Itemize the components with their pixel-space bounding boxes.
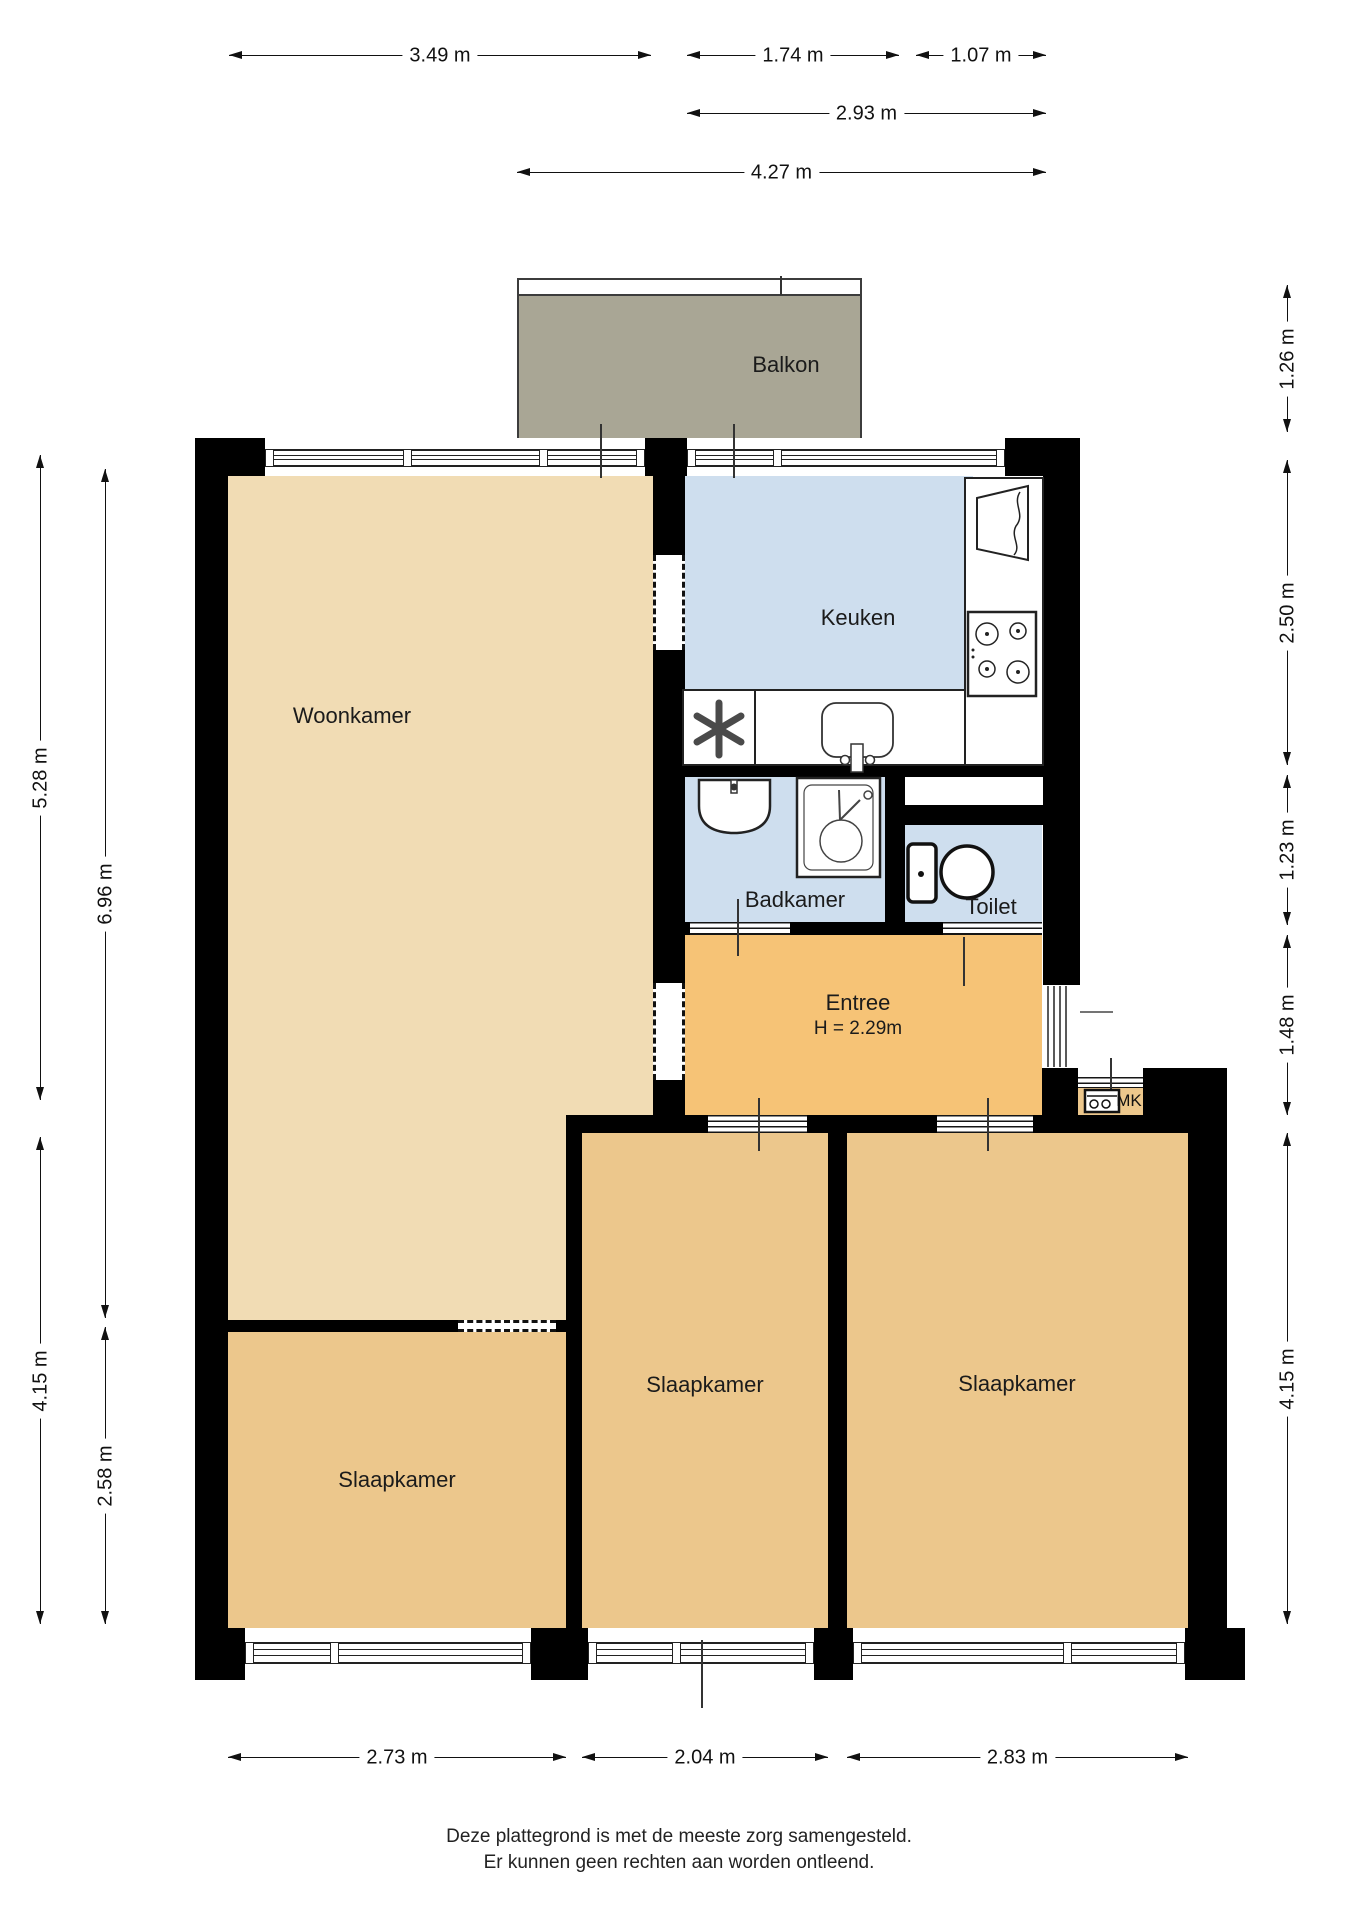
dim-right-148: 1.48 m bbox=[1287, 935, 1288, 1115]
open-passage-dashed bbox=[458, 1320, 556, 1332]
window-jamb bbox=[853, 1642, 862, 1664]
stove-icon bbox=[968, 612, 1036, 696]
dim-label: 1.07 m bbox=[943, 45, 1018, 68]
wall-segment bbox=[653, 765, 1043, 777]
wall-segment bbox=[1043, 438, 1080, 985]
wall-segment bbox=[195, 438, 265, 476]
open-passage-dashed bbox=[653, 555, 685, 650]
dim-label: 2.73 m bbox=[359, 1747, 434, 1770]
front-door-icon bbox=[1048, 986, 1113, 1067]
dim-right-123: 1.23 m bbox=[1287, 775, 1288, 925]
dim-label: 4.15 m bbox=[1277, 1341, 1300, 1416]
dim-label: 2.58 m bbox=[95, 1438, 118, 1513]
wall-segment bbox=[531, 1628, 588, 1680]
wall-segment bbox=[807, 1115, 937, 1133]
wall-segment bbox=[645, 438, 687, 476]
dim-label: 2.50 m bbox=[1277, 575, 1300, 650]
wall-segment bbox=[790, 922, 885, 935]
wall-segment bbox=[566, 1115, 582, 1628]
railing-joint-tick bbox=[780, 276, 782, 295]
door-toilet bbox=[943, 922, 1042, 935]
wall-segment bbox=[828, 1133, 847, 1628]
dim-label: 5.28 m bbox=[30, 740, 53, 815]
window-mullion bbox=[330, 1642, 339, 1664]
balcony-door-tick bbox=[733, 424, 735, 478]
dim-top-349: 3.49 m bbox=[229, 55, 651, 56]
window-mullion bbox=[1063, 1642, 1072, 1664]
wall-segment bbox=[653, 476, 685, 555]
room-label-slaapkamer-linksonder: Slaapkamer bbox=[338, 1467, 455, 1493]
dim-label: 2.04 m bbox=[667, 1747, 742, 1770]
wall-segment bbox=[1188, 1068, 1227, 1680]
window-jamb bbox=[1176, 1642, 1185, 1664]
window-slaapkamer-linksonder bbox=[245, 1642, 531, 1664]
wall-segment bbox=[653, 922, 690, 935]
open-passage-dashed bbox=[653, 983, 685, 1080]
balcony-railing bbox=[519, 280, 860, 296]
door-slaapkamer-rechts bbox=[937, 1115, 1033, 1133]
sink-icon bbox=[822, 703, 893, 772]
room-label-toilet: Toilet bbox=[965, 894, 1016, 920]
balcony-door-tick bbox=[600, 424, 602, 478]
window-jamb bbox=[687, 449, 696, 467]
dim-label: 1.23 m bbox=[1277, 812, 1300, 887]
room-label-keuken: Keuken bbox=[821, 605, 896, 631]
dim-right-415: 4.15 m bbox=[1287, 1133, 1288, 1624]
dim-label: 1.48 m bbox=[1277, 987, 1300, 1062]
window-woonkamer-top bbox=[265, 449, 645, 467]
door-badkamer bbox=[690, 922, 790, 935]
dim-left-528: 5.28 m bbox=[40, 455, 41, 1100]
window-jamb bbox=[805, 1642, 814, 1664]
dim-left-696: 6.96 m bbox=[105, 469, 106, 1318]
dim-top-107: 1.07 m bbox=[916, 55, 1046, 56]
dim-bottom-273: 2.73 m bbox=[228, 1757, 566, 1758]
dim-label: 2.83 m bbox=[980, 1747, 1055, 1770]
wall-segment bbox=[1143, 1068, 1188, 1133]
dim-label: 3.49 m bbox=[402, 45, 477, 68]
dim-label: 4.15 m bbox=[30, 1343, 53, 1418]
fridge-icon bbox=[977, 486, 1028, 560]
dim-top-174: 1.74 m bbox=[687, 55, 899, 56]
wall-segment bbox=[195, 438, 228, 1680]
dim-label: 1.26 m bbox=[1277, 321, 1300, 396]
wall-segment bbox=[814, 1628, 853, 1680]
wall-segment bbox=[195, 1628, 245, 1680]
wall-segment bbox=[1185, 1628, 1245, 1680]
window-jamb bbox=[245, 1642, 254, 1664]
wall-segment bbox=[885, 777, 905, 935]
window-jamb bbox=[636, 449, 645, 467]
dim-left-258: 2.58 m bbox=[105, 1327, 106, 1624]
floorplan-canvas: Balkon Woonkamer Keuken Badkamer Toilet … bbox=[0, 0, 1358, 1920]
window-slaapkamer-rechts bbox=[853, 1642, 1185, 1664]
room-label-balkon: Balkon bbox=[752, 352, 819, 378]
room-label-slaapkamer-midden: Slaapkamer bbox=[646, 1372, 763, 1398]
window-keuken-top bbox=[687, 449, 1005, 467]
footer-disclaimer-line2: Er kunnen geen rechten aan worden ontlee… bbox=[0, 1852, 1358, 1874]
wall-segment bbox=[1033, 1115, 1143, 1133]
door-tick-toilet bbox=[963, 937, 965, 986]
room-woonkamer-lower bbox=[228, 1115, 566, 1320]
room-label-woonkamer: Woonkamer bbox=[293, 703, 411, 729]
dim-bottom-204: 2.04 m bbox=[582, 1757, 828, 1758]
window-mullion bbox=[672, 1642, 681, 1664]
room-label-meterkast: MK bbox=[1116, 1091, 1142, 1111]
window-jamb bbox=[522, 1642, 531, 1664]
window-jamb bbox=[265, 449, 274, 467]
footer-disclaimer-line1: Deze plattegrond is met de meeste zorg s… bbox=[0, 1826, 1358, 1848]
room-label-badkamer: Badkamer bbox=[745, 887, 845, 913]
window-center-tick bbox=[701, 1640, 703, 1708]
wall-segment bbox=[1042, 1068, 1078, 1115]
dim-top-293: 2.93 m bbox=[687, 113, 1046, 114]
dim-right-250: 2.50 m bbox=[1287, 460, 1288, 765]
dim-right-126: 1.26 m bbox=[1287, 285, 1288, 432]
dim-bottom-283: 2.83 m bbox=[847, 1757, 1188, 1758]
kitchen-counter-bottom bbox=[683, 690, 965, 765]
dim-label: 1.74 m bbox=[755, 45, 830, 68]
dim-left-415: 4.15 m bbox=[40, 1137, 41, 1624]
dim-label: 2.93 m bbox=[829, 103, 904, 126]
wall-segment bbox=[566, 1115, 708, 1133]
door-tick-badkamer bbox=[737, 899, 739, 956]
wall-segment bbox=[905, 805, 1043, 825]
wall-segment bbox=[228, 1320, 458, 1332]
door-tick-slaapkamer-midden bbox=[758, 1098, 760, 1151]
kitchen-counter-right bbox=[965, 478, 1043, 765]
window-mullion bbox=[539, 449, 548, 467]
dim-label: 6.96 m bbox=[95, 856, 118, 931]
window-mullion bbox=[403, 449, 412, 467]
door-tick-meterkast bbox=[1110, 1058, 1112, 1091]
room-woonkamer bbox=[228, 476, 653, 1115]
dim-label: 4.27 m bbox=[744, 162, 819, 185]
room-label-entree: Entree bbox=[826, 990, 891, 1016]
washer-asterisk-icon bbox=[697, 703, 741, 755]
wall-segment bbox=[905, 922, 943, 935]
wall-segment bbox=[556, 1320, 566, 1332]
wall-segment bbox=[653, 1080, 685, 1115]
dim-top-427: 4.27 m bbox=[517, 172, 1046, 173]
window-jamb bbox=[996, 449, 1005, 467]
door-tick-slaapkamer-rechts bbox=[987, 1098, 989, 1151]
room-keuken bbox=[685, 467, 973, 690]
window-jamb bbox=[588, 1642, 597, 1664]
window-mullion bbox=[773, 449, 782, 467]
entree-ceiling-height: H = 2.29m bbox=[814, 1018, 902, 1040]
room-label-slaapkamer-rechts: Slaapkamer bbox=[958, 1371, 1075, 1397]
